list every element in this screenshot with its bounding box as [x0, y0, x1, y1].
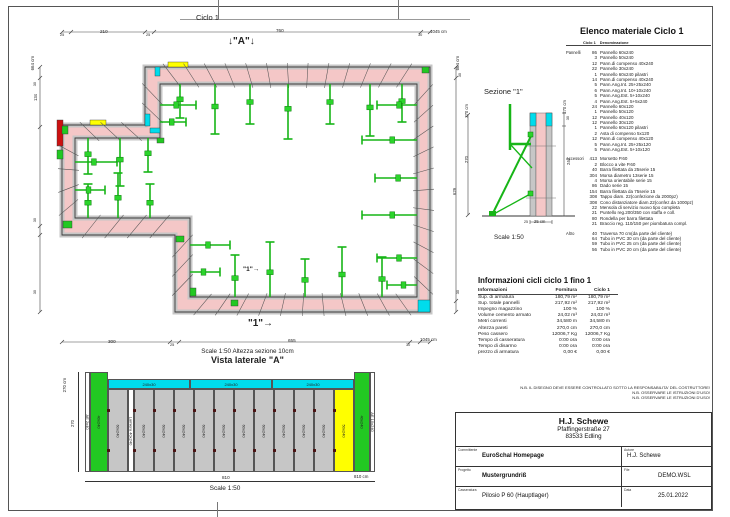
plan-tie [146, 184, 155, 218]
vista-tie-dot [193, 449, 196, 452]
title-block-row3: Casseratura Pilosio P 60 (Hauptlager) Da… [456, 487, 711, 507]
plan-accent-panel [157, 138, 164, 143]
vista-tie-dot [173, 409, 176, 412]
title-block-company: H.J. Schewe Pfaffingerstraße 27 83533 Ed… [456, 413, 711, 447]
vista-tie-dot [333, 409, 336, 412]
field-data: Data 25.01.2022 [622, 487, 711, 507]
plan-tie [266, 242, 275, 297]
vista-tie-dot [213, 409, 216, 412]
vista-tie-dot [107, 409, 110, 412]
plan-tie [362, 136, 417, 145]
info-col-ciclo1: Ciclo 1 [577, 288, 610, 294]
info-cell: prezzo di armatura [478, 350, 544, 356]
vista-dim-left-total: 270 cm [62, 378, 67, 392]
vista-tie-dot [153, 449, 156, 452]
material-col-name: Denominazione [600, 40, 629, 45]
sezione-dim-width: 25 cm [534, 219, 545, 224]
title-block-row2: Progetto Mustergrundriß File DEMO.WSL [456, 467, 711, 487]
vista-panel-gray: 60x240 [254, 389, 274, 472]
material-row: 21Braccio reg. 110/150 per piombatura co… [583, 221, 716, 226]
vista-tie-dot [253, 409, 256, 412]
material-group-label: Accessori [566, 156, 584, 161]
vista-tie-dot [133, 409, 136, 412]
vista-panel-label: 60x240 [182, 424, 187, 437]
vista-dim-bottom-total: 810 cm [354, 474, 368, 479]
vista-tie-dot [293, 409, 296, 412]
info-cell: 0,00 € [577, 350, 610, 356]
vista-panel-gray: 60x240 [234, 389, 254, 472]
vista-tie-dot [233, 409, 236, 412]
vista-tie-dot [313, 449, 316, 452]
vista-tie-dot [313, 409, 316, 412]
vista-panel-gray: 60x240 [194, 389, 214, 472]
field-committente: Committente EuroSchal Homepage [456, 447, 622, 466]
info-row: prezzo di armatura0,00 €0,00 € [478, 350, 618, 356]
field-label: File [624, 468, 709, 472]
fold-mark-bottom [217, 502, 218, 517]
plan-dim-left-total: 664 cm [30, 56, 35, 70]
field-progetto: Progetto Mustergrundriß [456, 467, 622, 486]
plan-tie [231, 255, 240, 297]
vista-tie-dot [133, 449, 136, 452]
note-line: N.B. OSSERVARE LE ISTRUZIONI D'USO! [440, 396, 710, 401]
material-groups: Pannelli86Pannello 60x2403Pannello 50x24… [566, 50, 716, 252]
plan-drawing [30, 10, 470, 355]
material-list: Elenco materiale Ciclo 1 Ciclo 1 Denomin… [566, 26, 716, 252]
vista-left-dimline [78, 372, 79, 472]
material-name: Pann.Ang.Est. 5+10x120 [600, 147, 650, 152]
material-group: Altro40Traversa 70 cm(da parte del clien… [566, 231, 716, 253]
material-name: Tubo in PVC 20 cm (da parte del cliente) [600, 247, 681, 252]
vista-panel-green: 40x240 [90, 372, 108, 472]
field-autore: Autore H.J. Schewe [622, 447, 711, 466]
vista-panel-yellow: 50x240 [334, 389, 354, 472]
plan-dim-left-30a: 30 [33, 82, 37, 86]
vista-tie-dot [273, 409, 276, 412]
vista-tie-dot [273, 449, 276, 452]
plan-dim-bottom-300: 300 [108, 339, 116, 344]
vista-dim-bottom: 810 [222, 475, 230, 480]
material-row: 56Tubo in PVC 20 cm (da parte del client… [583, 247, 716, 252]
vista-scale: Scale 1:50 [160, 485, 290, 492]
plan-tie [377, 101, 417, 110]
plan-dim-bottom-total: 1045 cm [420, 337, 437, 342]
marker-1-text: "1" [248, 318, 263, 329]
material-group: Pannelli86Pannello 60x2403Pannello 50x24… [566, 50, 716, 152]
plan-accent-panel [422, 67, 429, 73]
plan-tie [190, 268, 220, 277]
cycle-info: Informazioni cicli ciclo 1 fino 1 Inform… [478, 276, 618, 356]
plan-dim-right-629: 629 [452, 188, 457, 195]
vista-tie-dot [213, 449, 216, 452]
plan-dim-top-25b: 25 [146, 33, 150, 37]
vista-panel-label: 40x240 [97, 415, 102, 428]
vista-panel-label: 60x240 [262, 424, 267, 437]
plan-accent-panel [231, 300, 238, 306]
material-group-label: Altro [566, 231, 574, 236]
company-name: H.J. Schewe [456, 416, 711, 426]
vista-elevation: AE 2x4040x24060x240Lamiera 40x24060x2406… [85, 372, 375, 472]
vista-panel-label: 60x240 [322, 424, 327, 437]
material-list-header: Ciclo 1 Denominazione [566, 40, 711, 46]
vista-panel-label: Lamiera 40x240 [129, 416, 134, 445]
vista-tie-dot [293, 449, 296, 452]
field-label: Casseratura [458, 488, 619, 492]
vista-panel-gray: 60x240 [294, 389, 314, 472]
drawing-sheet: Ciclo 1 ↓"A"↓ 25 210 25 760 30 1045 cm 3… [0, 0, 730, 517]
field-label: Data [624, 488, 709, 492]
plan-walls [57, 62, 434, 316]
vista-tie-dot [233, 449, 236, 452]
vista-panel-label: 60x240 [302, 424, 307, 437]
plan-scale-note: Scale 1:50 Altezza sezione 10cm [150, 348, 345, 355]
field-file: File DEMO.WSL [622, 467, 711, 486]
plan-tie [75, 158, 117, 167]
vista-panel-label: 50x240 [342, 424, 347, 437]
plan-tie [114, 173, 123, 218]
plan-tie [176, 84, 185, 118]
title-block: H.J. Schewe Pfaffingerstraße 27 83533 Ed… [455, 412, 712, 510]
plan-dim-bottom-25: 25 [170, 343, 174, 347]
vista-panel-label: 60x240 [242, 424, 247, 437]
plan-tie [375, 174, 417, 183]
vista-panel-label: 60x240 [202, 424, 207, 437]
field-value: Pilosio P 60 (Hauptlager) [482, 493, 619, 499]
vista-panel-gray: 60x240 [274, 389, 294, 472]
plan-dim-left-30b: 30 [33, 218, 37, 222]
sezione-title: Sezione "1" [484, 87, 523, 96]
material-qty: 56 [583, 247, 597, 252]
vista-panel-label: 60x240 [162, 424, 167, 437]
vista-panel-gray: 60x240 [108, 389, 128, 472]
plan-tie [387, 281, 417, 290]
vista-walkway-segment: 240x30 [108, 379, 190, 389]
info-col-fornitura: Fornitura [544, 288, 577, 294]
plan-accent-panel [418, 300, 430, 312]
vista-panel-label: 60x240 [222, 424, 227, 437]
plan-dim-top-30: 30 [418, 33, 422, 37]
plan-tie [377, 254, 417, 263]
plan-accent-panel [145, 114, 150, 126]
plan-tie [84, 138, 93, 174]
field-value: DEMO.WSL [658, 473, 709, 479]
vista-panel-label: 40x240 [360, 415, 365, 428]
vista-tie-dot [107, 449, 110, 452]
cycle-info-rows: Sup. di armatura180,79 m²180,79 m²Sup. t… [478, 295, 618, 356]
company-address1: Pfaffingerstraße 27 [456, 426, 711, 433]
vista-panel-label: AE 10x240 [370, 412, 375, 432]
vista-tie-dot [253, 449, 256, 452]
plan-dim-left-134: 134 [33, 94, 38, 101]
plan-dim-right-270cm: 270 cm [464, 104, 469, 118]
field-value: EuroSchal Homepage [482, 453, 619, 459]
material-list-title: Elenco materiale Ciclo 1 [566, 26, 716, 36]
plan-tie [326, 84, 335, 124]
field-value: 25.01.2022 [658, 493, 709, 499]
info-col-label: Informazioni [478, 288, 544, 294]
plan-accent-panel [190, 288, 196, 296]
plan-dim-top-210: 210 [100, 29, 108, 34]
plan-tie [246, 84, 255, 124]
vista-title: Vista laterale "A" [150, 355, 345, 365]
vista-panel-gray: 60x240 [154, 389, 174, 472]
material-name: Braccio reg. 110/150 per piombatura comp… [600, 221, 687, 226]
plan-tie [75, 186, 105, 195]
company-address2: 83533 Edling [456, 433, 711, 440]
field-casseratura: Casseratura Pilosio P 60 (Hauptlager) [456, 487, 622, 507]
material-row: 5Pann.Ang.Est. 5+10x120 [583, 147, 716, 152]
plan-dim-top-total: 1045 cm [430, 29, 447, 34]
field-value: H.J. Schewe [627, 453, 709, 459]
cycle-info-title: Informazioni cicli ciclo 1 fino 1 [478, 276, 618, 285]
plan-dim-top-760: 760 [276, 28, 284, 33]
plan-tie [144, 138, 153, 172]
plan-tie [366, 84, 375, 136]
plan-dim-left-30c: 30 [33, 290, 37, 294]
plan-tie [190, 241, 230, 250]
marker-1-arrow-icon: → [263, 318, 273, 329]
vista-panel-gray: 60x240 [314, 389, 334, 472]
disclaimer-notes: N.B. IL DISEGNO DEVE ESSERE CONTROLLATO … [440, 386, 710, 401]
material-group: Accessori413Morsetto P.602Blocco a vite … [566, 156, 716, 226]
vista-tie-dot [173, 449, 176, 452]
plan-dim-right-30b: 30 [456, 290, 460, 294]
plan-section-marker-1-outer: "1"→ [248, 318, 273, 329]
plan-accent-panel [150, 128, 160, 133]
plan-dim-top-25: 25 [60, 33, 64, 37]
plan-dim-right-30a: 30 [458, 73, 462, 77]
vista-panel-label: 60x240 [116, 424, 121, 437]
plan-accent-panel [57, 150, 63, 159]
material-group-label: Pannelli [566, 50, 581, 55]
plan-tie [378, 257, 387, 297]
sezione-scale: Scale 1:50 [494, 234, 524, 241]
plan-tie [338, 247, 347, 297]
material-qty: 5 [583, 147, 597, 152]
vista-panel-gray: 60x240 [134, 389, 154, 472]
plan-dim-right-total: 664 cm [455, 56, 460, 70]
sezione-drawing [480, 98, 580, 228]
vista-tie-dot [153, 409, 156, 412]
vista-panel-ae: AE 10x240 [370, 372, 375, 472]
plan-tie [211, 84, 220, 134]
vista-walkway-segment: 240x30 [190, 379, 272, 389]
plan-accent-panel [176, 236, 184, 242]
vista-panel-label: 60x240 [282, 424, 287, 437]
title-block-row1: Committente EuroSchal Homepage Autore H.… [456, 447, 711, 467]
plan-dim-bottom-655: 655 [288, 338, 296, 343]
material-qty: 21 [583, 221, 597, 226]
vista-tie-dot [193, 409, 196, 412]
field-label: Progetto [458, 468, 619, 472]
vista-tie-dot [333, 449, 336, 452]
plan-tie [160, 118, 186, 127]
vista-panel-gray: 60x240 [214, 389, 234, 472]
plan-accent-panel [63, 221, 72, 228]
plan-section-marker-1-inner: "1"→ [243, 266, 259, 273]
vista-dim-left: 270 [70, 420, 75, 427]
info-cell: 0,00 € [544, 350, 577, 356]
vista-panel-green: 40x240 [354, 372, 370, 472]
plan-dim-right-270: 270 [464, 156, 469, 163]
vista-bottom-dimline [85, 481, 375, 482]
vista-walkway-segment: 240x30 [272, 379, 354, 389]
field-label: Committente [458, 448, 619, 452]
plan-tie [160, 101, 196, 110]
material-col-qty: Ciclo 1 [583, 40, 596, 45]
plan-tie [116, 138, 125, 186]
plan-tie [362, 211, 417, 220]
plan-dim-bottom-30: 30 [406, 343, 410, 347]
marker-1-arrow-icon: → [253, 266, 260, 273]
plan-tie [301, 259, 310, 297]
sezione-dim-25-tick: 25 [524, 220, 528, 224]
vista-panel-gray: 60x240 [174, 389, 194, 472]
plan-accent-panel [90, 120, 106, 125]
field-value: Mustergrundriß [482, 473, 619, 479]
field-label: Autore [624, 448, 709, 452]
vista-panel-label: 60x240 [142, 424, 147, 437]
plan-accent-panel [62, 126, 68, 134]
plan-accent-panel [155, 67, 160, 76]
marker-1-text: "1" [243, 266, 253, 273]
plan-tie [284, 84, 293, 139]
